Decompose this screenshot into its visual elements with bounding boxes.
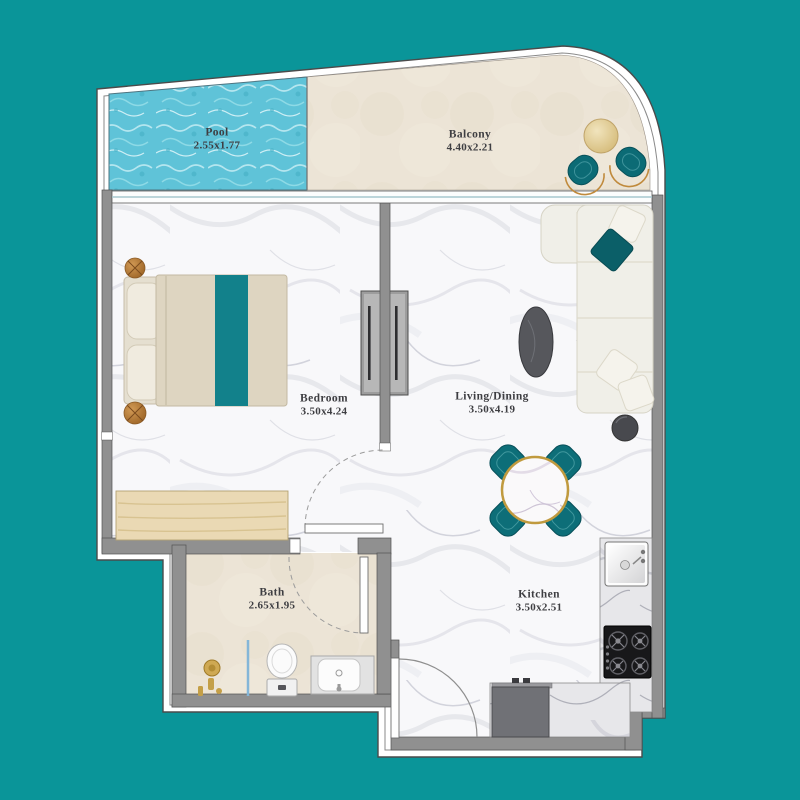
toilet [267, 644, 297, 696]
coffee-table [519, 307, 553, 377]
wall-left-upper [102, 190, 112, 432]
bed-runner [215, 275, 248, 406]
wall-bath-top-stub [358, 538, 391, 554]
bed [124, 275, 287, 406]
floor-plan-canvas: Pool 2.55x1.77 Balcony 4.40x2.21 Bedroom… [0, 0, 800, 800]
bedside-table [124, 402, 146, 424]
wall-bath-left [172, 545, 186, 707]
dining-table [502, 457, 568, 523]
floor-plan-svg [0, 0, 800, 800]
cooktop [604, 626, 651, 678]
wall-bath-right [377, 553, 391, 694]
wall-bottom [391, 737, 642, 750]
wall-entry-stub [391, 640, 399, 658]
dresser [116, 491, 288, 540]
kitchen-appliance [492, 678, 552, 737]
balcony-table [584, 119, 618, 153]
wall-left-lower [102, 440, 112, 553]
window-band [112, 191, 652, 203]
side-ottoman [612, 415, 638, 441]
wall-bedroom-living-divider [380, 203, 390, 443]
bedside-table [125, 258, 145, 278]
kitchen-sink [605, 542, 648, 586]
wall-right [652, 195, 663, 718]
pool-floor [109, 77, 307, 190]
bathroom-vanity [311, 656, 374, 694]
